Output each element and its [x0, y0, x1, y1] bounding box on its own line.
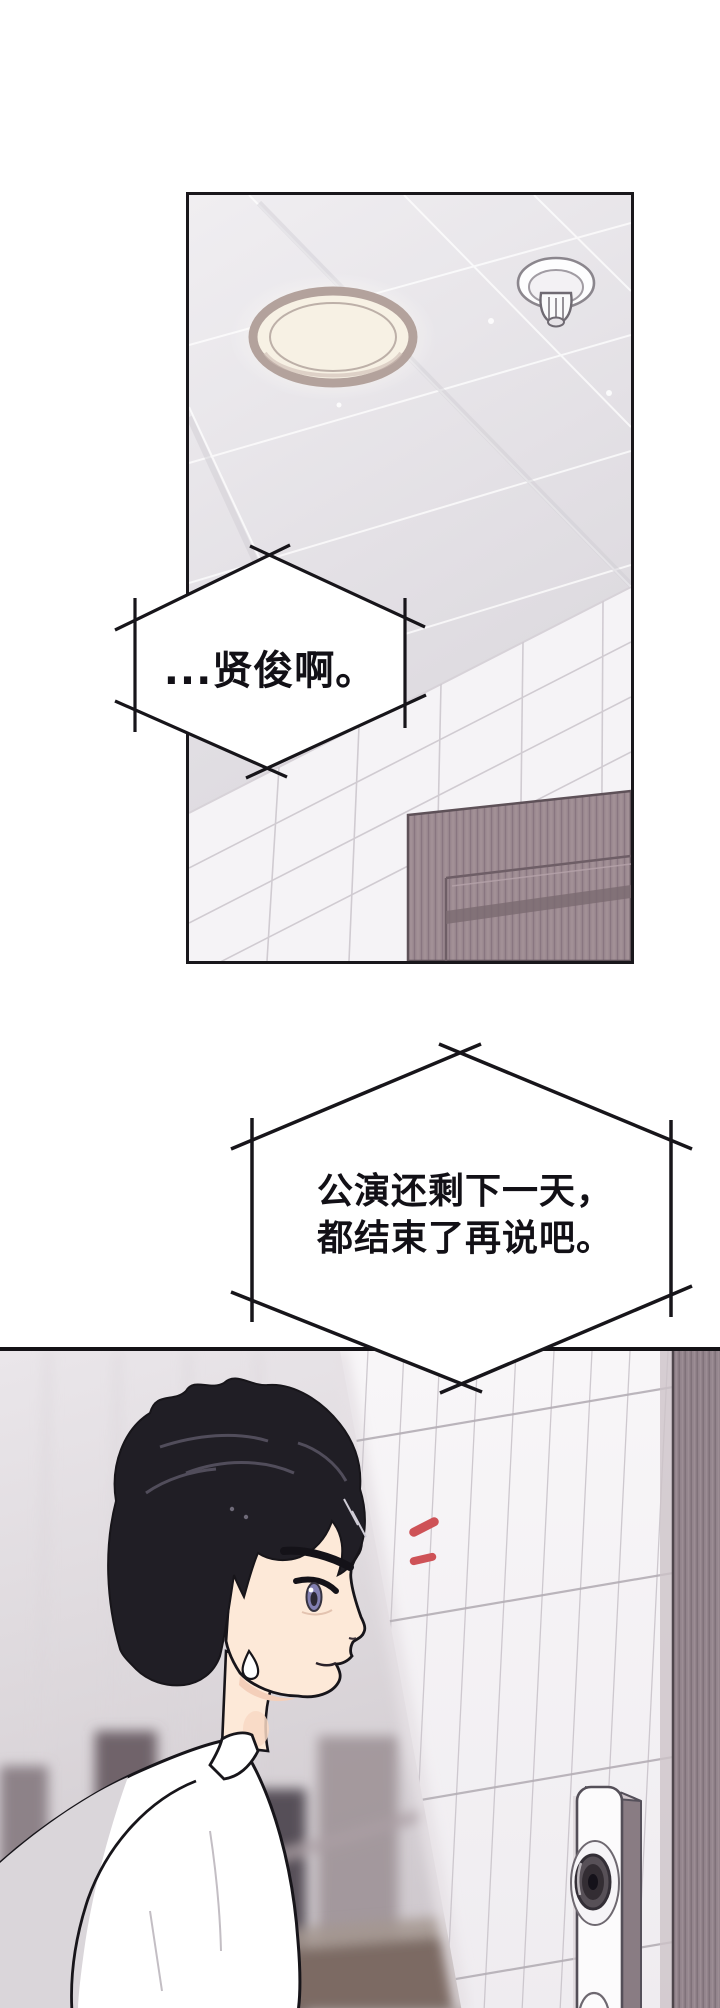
speech-bubble-2-line2: 都结束了再说吧。 — [220, 1215, 710, 1262]
panel-character-art — [0, 1351, 720, 2008]
wooden-door — [408, 791, 631, 961]
speech-bubble-2-text: 公演还剩下一天， 都结束了再说吧。 — [220, 1168, 710, 1262]
door-frame — [660, 1351, 720, 2008]
intercom — [571, 1787, 641, 2008]
nostril — [349, 1638, 356, 1639]
speech-bubble-1-text: ...贤俊啊。 — [100, 638, 440, 696]
intercom-side — [622, 1793, 641, 2008]
ceiling-light — [229, 273, 437, 401]
panel-character — [0, 1347, 720, 2008]
speech-bubble-2: 公演还剩下一天， 都结束了再说吧。 — [220, 1035, 710, 1405]
camera-lens — [576, 1855, 610, 1909]
comic-page: ...贤俊啊。 公演还剩下一天， 都结束了再说吧。 — [0, 0, 720, 2008]
speech-bubble-1: ...贤俊啊。 — [100, 530, 440, 790]
speech-bubble-2-line1: 公演还剩下一天， — [220, 1168, 710, 1215]
